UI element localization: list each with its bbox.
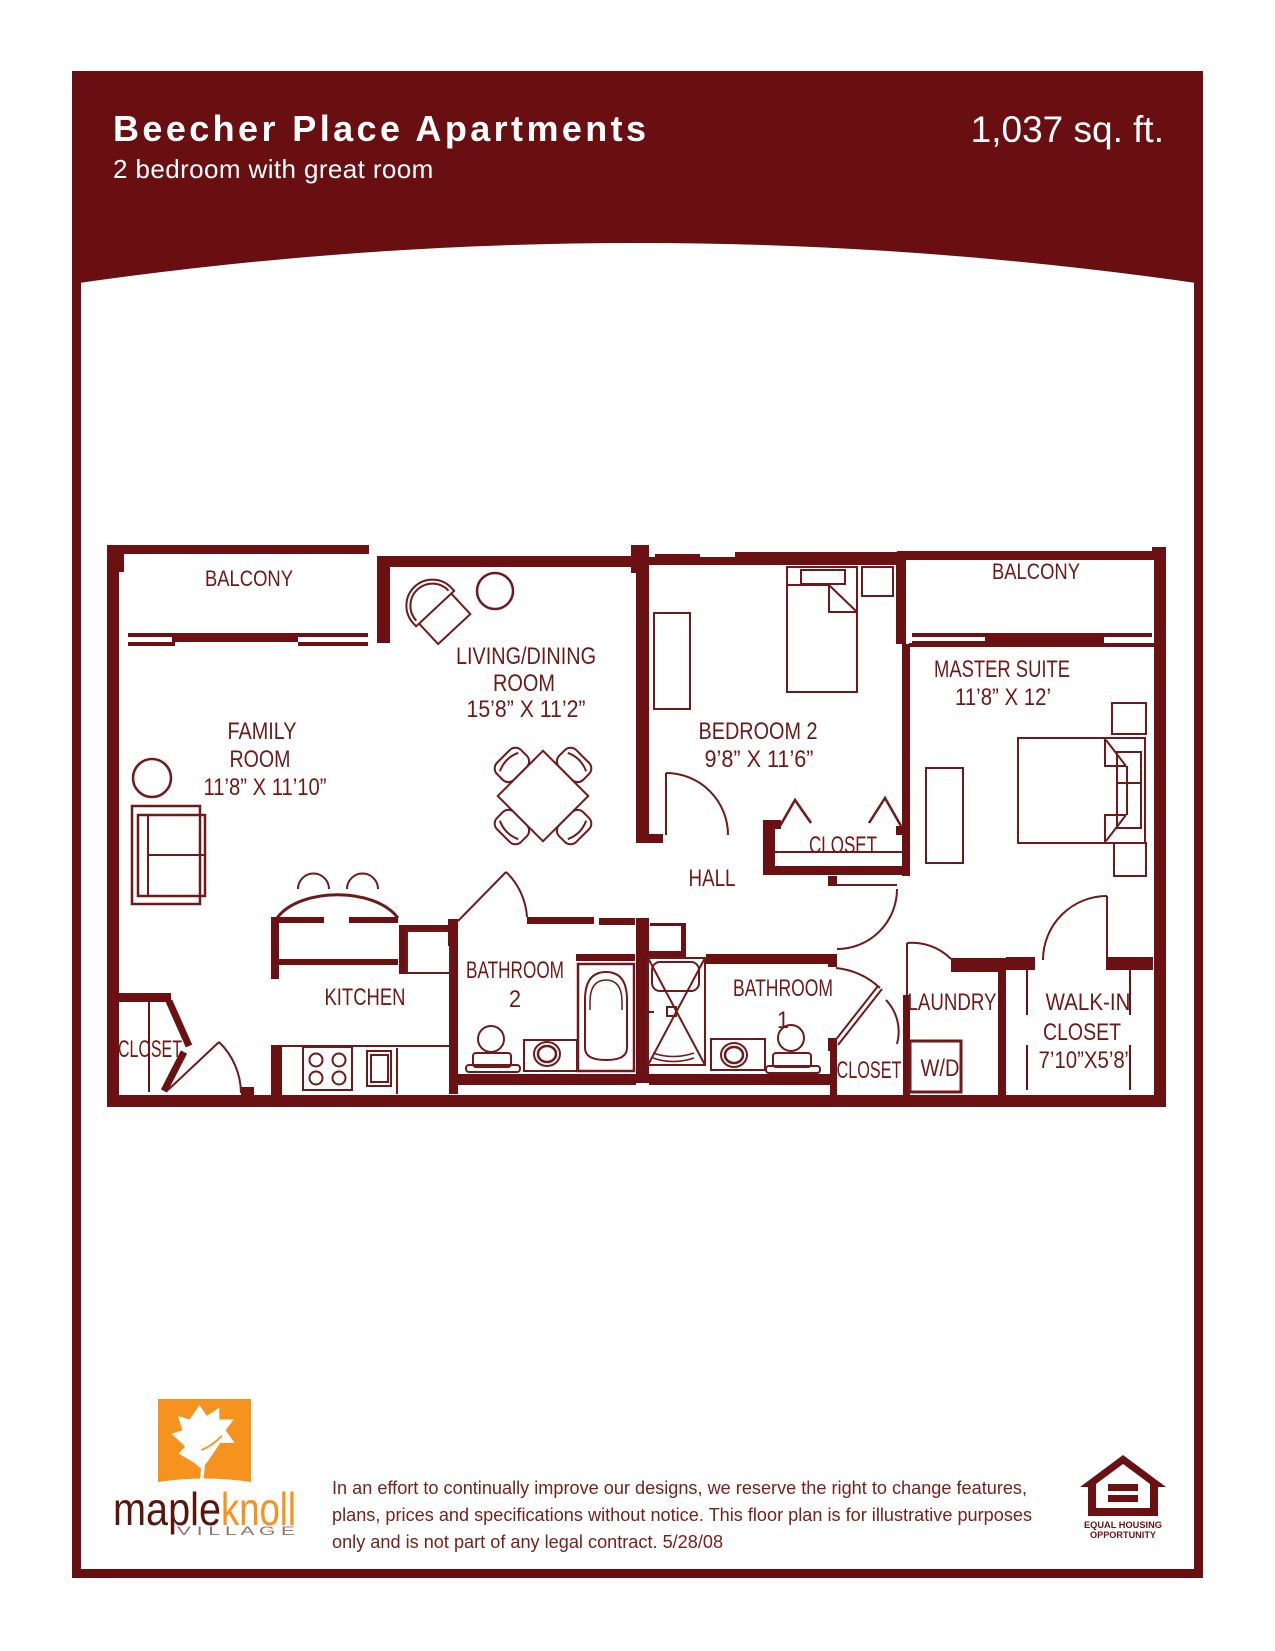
svg-text:EQUAL HOUSING: EQUAL HOUSING bbox=[1084, 1520, 1162, 1530]
svg-text:OPPORTUNITY: OPPORTUNITY bbox=[1090, 1530, 1156, 1540]
